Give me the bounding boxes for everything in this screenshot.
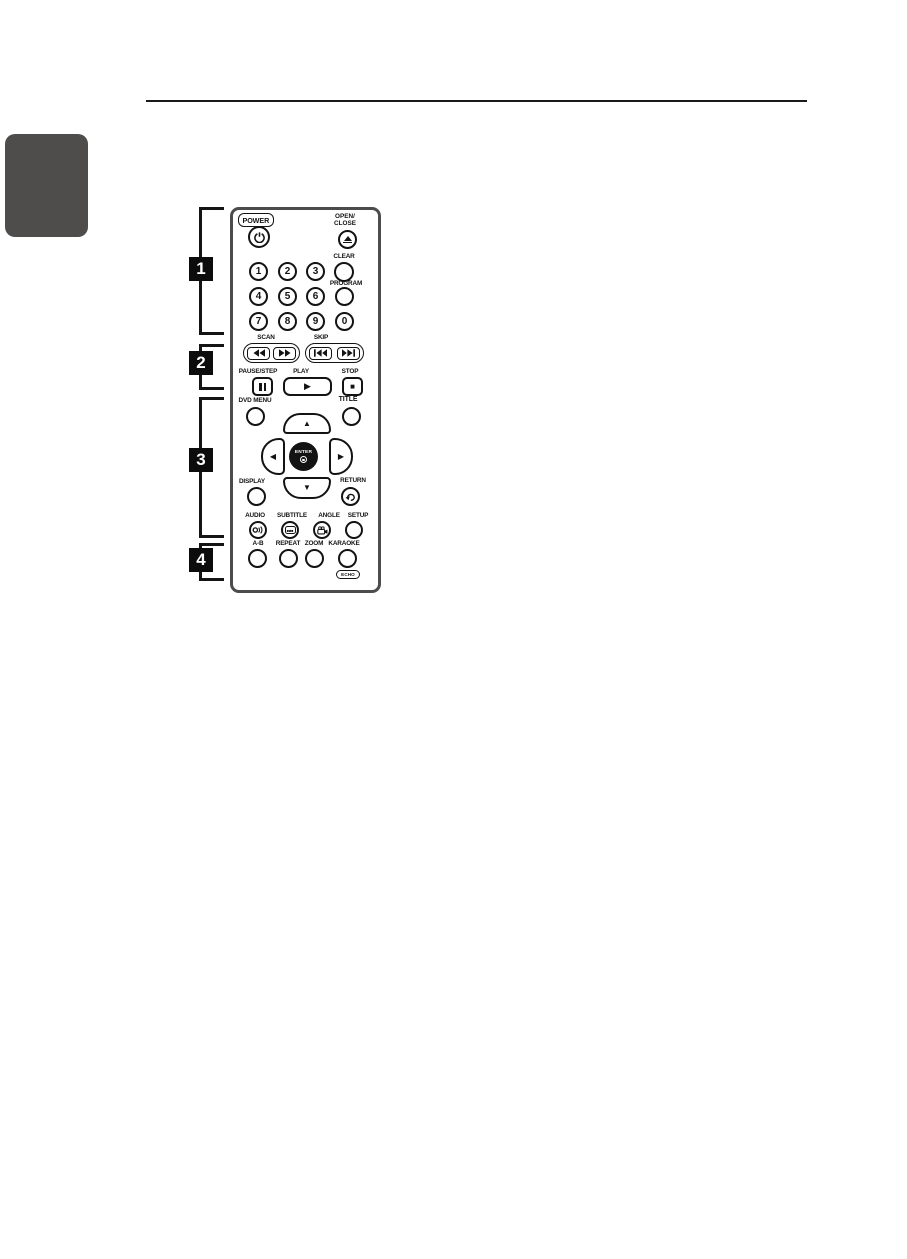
dvd-menu-label: DVD MENU bbox=[239, 397, 272, 404]
pause-button bbox=[252, 377, 273, 396]
digit-button-6: 6 bbox=[306, 287, 325, 306]
subtitle-label: SUBTITLE bbox=[277, 512, 307, 519]
remote-control-body: POWER OPEN/ CLOSE 1 2 3 4 5 6 7 8 9 0 CL… bbox=[230, 207, 381, 593]
program-label: PROGRAM bbox=[330, 280, 362, 287]
audio-label: AUDIO bbox=[245, 512, 265, 519]
bracket-tick bbox=[199, 344, 224, 347]
header-rule bbox=[146, 100, 807, 102]
setup-label: SETUP bbox=[348, 512, 369, 519]
stop-label: STOP bbox=[342, 368, 359, 375]
title-label: TITLE bbox=[339, 396, 358, 403]
section-side-tab bbox=[5, 134, 88, 237]
angle-camera-icon bbox=[317, 526, 328, 535]
repeat-button bbox=[279, 549, 298, 568]
enter-label: ENTER bbox=[295, 450, 312, 455]
subtitle-box-icon bbox=[285, 526, 296, 534]
rewind-icon bbox=[253, 349, 265, 357]
fast-forward-button bbox=[273, 347, 296, 360]
open-close-label: OPEN/ CLOSE bbox=[334, 213, 356, 227]
bracket-tick bbox=[199, 543, 224, 546]
pause-icon bbox=[259, 383, 266, 391]
dpad-left-button: ◀ bbox=[261, 438, 285, 475]
dpad-down-button: ▼ bbox=[283, 477, 331, 499]
scan-label: SCAN bbox=[257, 334, 275, 341]
eject-icon bbox=[343, 236, 352, 244]
skip-label: SKIP bbox=[314, 334, 328, 341]
bracket-tick bbox=[199, 397, 224, 400]
return-label: RETURN bbox=[340, 477, 366, 484]
karaoke-label: KARAOKE bbox=[328, 540, 359, 547]
pause-step-label: PAUSE/STEP bbox=[239, 368, 278, 375]
repeat-label: REPEAT bbox=[276, 540, 301, 547]
display-button bbox=[247, 487, 266, 506]
manual-page: 1 2 3 4 POWER OPEN/ CLOSE 1 2 3 4 5 6 7 … bbox=[0, 0, 907, 1259]
dpad-up-button: ▲ bbox=[283, 413, 331, 434]
angle-label: ANGLE bbox=[318, 512, 340, 519]
section-badge-1: 1 bbox=[189, 257, 213, 281]
right-arrow-icon: ▶ bbox=[338, 453, 344, 461]
up-arrow-icon: ▲ bbox=[303, 420, 311, 428]
enter-dot-icon bbox=[300, 456, 307, 463]
left-arrow-icon: ◀ bbox=[270, 453, 276, 461]
echo-badge: ECHO bbox=[336, 570, 360, 579]
ab-button bbox=[248, 549, 267, 568]
digit-button-1: 1 bbox=[249, 262, 268, 281]
open-close-line1: OPEN/ bbox=[335, 213, 355, 220]
digit-button-7: 7 bbox=[249, 312, 268, 331]
section-badge-3: 3 bbox=[189, 448, 213, 472]
audio-button bbox=[249, 521, 267, 539]
play-button: ▶ bbox=[283, 377, 332, 396]
scan-button-group bbox=[243, 343, 300, 363]
play-icon: ▶ bbox=[304, 382, 311, 391]
skip-button-group bbox=[305, 343, 364, 363]
return-icon bbox=[345, 492, 356, 502]
ab-label: A-B bbox=[253, 540, 264, 547]
play-label: PLAY bbox=[293, 368, 309, 375]
title-button bbox=[342, 407, 361, 426]
karaoke-button bbox=[338, 549, 357, 568]
digit-button-2: 2 bbox=[278, 262, 297, 281]
digit-button-0: 0 bbox=[335, 312, 354, 331]
skip-forward-button bbox=[337, 347, 360, 360]
power-label: POWER bbox=[238, 213, 274, 227]
skip-forward-icon bbox=[342, 349, 355, 357]
power-icon bbox=[254, 232, 265, 243]
digit-button-3: 3 bbox=[306, 262, 325, 281]
rewind-button bbox=[247, 347, 270, 360]
bracket-tick bbox=[199, 578, 224, 581]
zoom-button bbox=[305, 549, 324, 568]
return-button bbox=[341, 487, 360, 506]
dpad-right-button: ▶ bbox=[329, 438, 353, 475]
bracket-tick bbox=[199, 332, 224, 335]
clear-label: CLEAR bbox=[333, 253, 354, 260]
skip-back-icon bbox=[314, 349, 327, 357]
open-close-button bbox=[338, 230, 357, 249]
digit-button-9: 9 bbox=[306, 312, 325, 331]
setup-button bbox=[345, 521, 363, 539]
subtitle-button bbox=[281, 521, 299, 539]
digit-button-4: 4 bbox=[249, 287, 268, 306]
display-label: DISPLAY bbox=[239, 478, 265, 485]
audio-sound-waves-icon bbox=[252, 525, 264, 535]
bracket-tick bbox=[199, 207, 224, 210]
angle-button bbox=[313, 521, 331, 539]
program-button bbox=[335, 287, 354, 306]
enter-button: ENTER bbox=[289, 442, 318, 471]
skip-back-button bbox=[309, 347, 332, 360]
open-close-line2: CLOSE bbox=[334, 220, 356, 227]
clear-button bbox=[334, 262, 354, 282]
bracket-tick bbox=[199, 535, 224, 538]
section-badge-2: 2 bbox=[189, 351, 213, 375]
bracket-tick bbox=[199, 387, 224, 390]
zoom-label: ZOOM bbox=[305, 540, 324, 547]
digit-button-8: 8 bbox=[278, 312, 297, 331]
power-button bbox=[248, 226, 270, 248]
fast-forward-icon bbox=[279, 349, 291, 357]
dvd-menu-button bbox=[246, 407, 265, 426]
down-arrow-icon: ▼ bbox=[303, 484, 311, 492]
digit-button-5: 5 bbox=[278, 287, 297, 306]
stop-icon: ■ bbox=[350, 383, 355, 391]
section-badge-4: 4 bbox=[189, 548, 213, 572]
stop-button: ■ bbox=[342, 377, 363, 396]
